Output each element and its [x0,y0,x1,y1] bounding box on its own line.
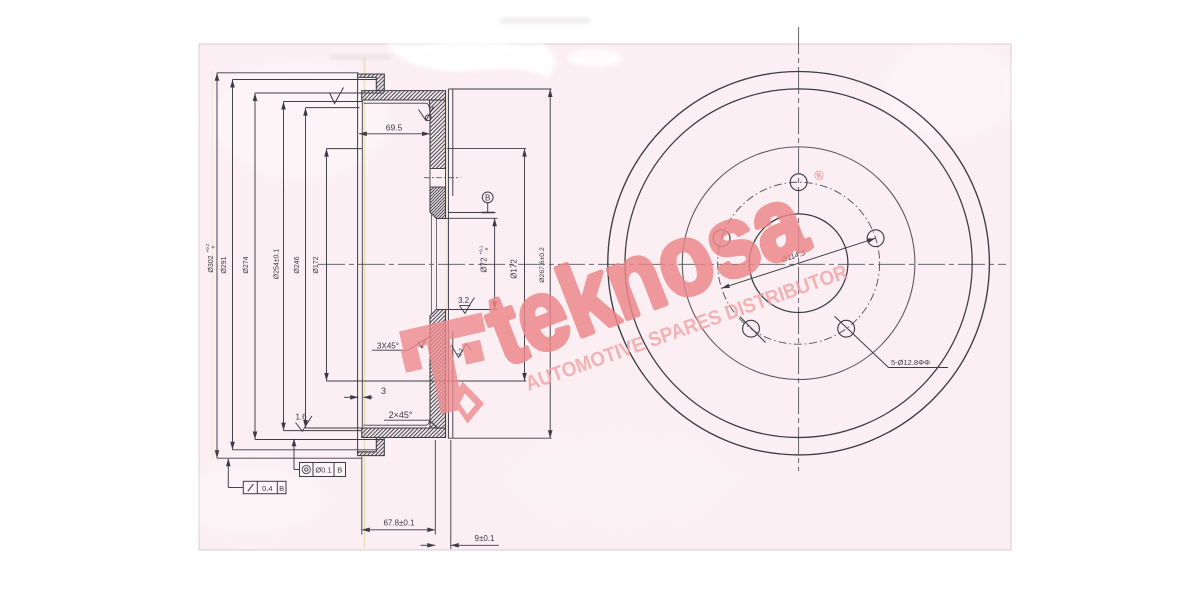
svg-text:3.2: 3.2 [458,296,470,305]
svg-text:B: B [485,194,490,203]
svg-text:Ø291: Ø291 [221,256,228,273]
svg-text:+0.2: +0.2 [205,243,210,252]
svg-text:3: 3 [381,386,386,396]
svg-text:B: B [337,466,342,475]
svg-text:0.4: 0.4 [262,484,272,493]
svg-text:Ø254±0.1: Ø254±0.1 [274,249,281,280]
svg-text:9±0.1: 9±0.1 [475,534,496,543]
svg-text:B: B [279,484,284,493]
svg-text:69.5: 69.5 [386,123,403,133]
svg-text:2×45°: 2×45° [389,410,413,420]
svg-text:Ø172: Ø172 [313,256,320,273]
svg-text:Ø72: Ø72 [480,257,489,273]
svg-text:1.6: 1.6 [295,413,307,422]
svg-text:Ø274: Ø274 [243,256,250,273]
svg-text:Ø0.1: Ø0.1 [315,466,331,475]
svg-text:Ø302: Ø302 [208,255,215,272]
svg-text:67.8±0.1: 67.8±0.1 [383,519,415,528]
svg-text:3X45°: 3X45° [377,341,399,350]
svg-text:+0.1: +0.1 [479,245,484,254]
svg-text:5-Ø12.8ΦΦ: 5-Ø12.8ΦΦ [891,358,930,367]
svg-text:Ø246: Ø246 [294,256,301,273]
